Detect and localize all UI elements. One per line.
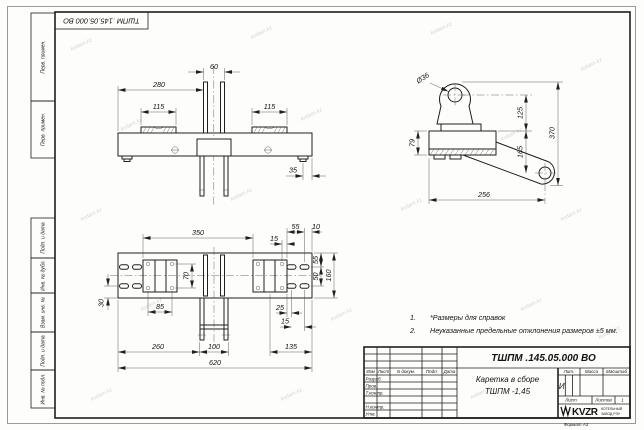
drawing-sheet: kotlam.kz kotlam.kz kotlam.kz kotlam.kz … <box>0 0 644 430</box>
front-view: 60 280 115 115 35 <box>118 62 326 205</box>
side-view: Ø36 125 165 370 79 256 <box>408 70 564 204</box>
frame-label-vzam-inv: Взам. инв. № <box>40 296 46 328</box>
dim-label-165: 165 <box>516 145 525 158</box>
dim-label-35: 35 <box>289 166 298 175</box>
sheet-label: Лист <box>564 398 577 403</box>
dim-label-350: 350 <box>192 228 204 237</box>
title-block: ТШПМ .145.05.000 ВО Каретка в сборе ТШПМ… <box>364 347 630 418</box>
part-name-line2: ТШПМ -1,45 <box>485 387 531 396</box>
note-1-text: *Размеры для справок <box>430 313 506 322</box>
col-ndoc: N докум. <box>397 369 415 374</box>
dim-label-135: 135 <box>285 342 298 351</box>
part-name-line1: Каретка в сборе <box>476 375 540 384</box>
logo-sub-line1: КОТЕЛЬНЫЙ <box>601 407 623 411</box>
sheets-value: 1 <box>621 398 624 403</box>
dim-label-260: 260 <box>151 342 164 351</box>
sheets-label: Листов <box>594 398 612 403</box>
dim-label-256: 256 <box>477 190 490 199</box>
logo-zigzag-icon <box>561 407 570 415</box>
lit-value: И <box>559 382 565 391</box>
dim-label-115-left: 115 <box>153 102 165 111</box>
logo-sub-line2: ЗАВОД РЭУ <box>601 412 621 416</box>
dim-label-115-right: 115 <box>264 102 276 111</box>
dim-label-55-top: 55 <box>292 222 301 231</box>
logo-text: KVZR <box>572 407 599 418</box>
row-nkontr: Н.контр. <box>366 405 385 410</box>
dim-label-60: 60 <box>210 62 218 71</box>
dim-label-620: 620 <box>209 358 221 367</box>
dim-label-70: 70 <box>182 272 191 280</box>
mass-label: Масса <box>585 369 599 374</box>
scale-label: Масштаб <box>606 369 627 374</box>
col-podp: Подп. <box>426 369 438 374</box>
dim-label-160: 160 <box>324 270 333 282</box>
titleblock-doc-number: ТШПМ .145.05.000 ВО <box>491 353 596 364</box>
top-doc-number: ТШПМ .145.05.000 ВО <box>63 17 140 26</box>
frame-label-inv-dubl: Инв. № дубл. <box>40 260 46 291</box>
row-razrab: Разраб. <box>366 377 382 382</box>
row-tkontr: Т.контр. <box>366 391 384 396</box>
note-2-number: 2. <box>409 326 416 335</box>
frame-label-perv-primen-1: Перв. примен. <box>40 40 46 73</box>
dim-label-370: 370 <box>548 127 557 139</box>
dim-label-25: 25 <box>275 303 285 312</box>
dim-label-125: 125 <box>516 106 525 119</box>
col-list: Лист <box>377 369 390 374</box>
row-utv: Утв. <box>366 412 376 417</box>
notes: 1. *Размеры для справок 2. Неуказанные п… <box>409 313 618 335</box>
dim-label-100: 100 <box>208 342 220 351</box>
note-1-number: 1. <box>410 313 416 322</box>
frame-label-perv-primen-2: Перв. примен. <box>40 113 46 146</box>
note-2-text: Неуказанные предельные отклонения размер… <box>430 326 618 335</box>
plan-view: 350 15 55 10 70 85 <box>97 222 339 372</box>
dim-label-10: 10 <box>312 222 320 231</box>
dim-label-15-top: 15 <box>270 234 279 243</box>
row-prov: Пров. <box>366 384 378 389</box>
dim-label-15-bottom: 15 <box>281 317 290 326</box>
drawing-canvas: Перв. примен. Перв. примен. Подп. и дата… <box>0 0 644 430</box>
format-label: Формат А3 <box>564 422 589 427</box>
dim-label-dia36: Ø36 <box>414 70 431 85</box>
col-data: Дата <box>443 369 456 374</box>
col-izm: Изм <box>366 369 374 374</box>
dim-label-50-right: 50 <box>311 273 320 281</box>
dim-label-55-right: 55 <box>311 255 320 264</box>
dim-label-79: 79 <box>408 139 417 147</box>
dim-label-30: 30 <box>97 299 106 307</box>
lit-label: Лит. <box>563 369 575 374</box>
frame-label-podp-data-2: Подп. и дата <box>40 335 46 367</box>
frame-label-podp-data-1: Подп. и дата <box>40 222 46 254</box>
dim-label-280: 280 <box>152 80 165 89</box>
frame-label-inv-podl: Инв. № подл. <box>40 373 46 404</box>
dim-label-85: 85 <box>156 302 165 311</box>
